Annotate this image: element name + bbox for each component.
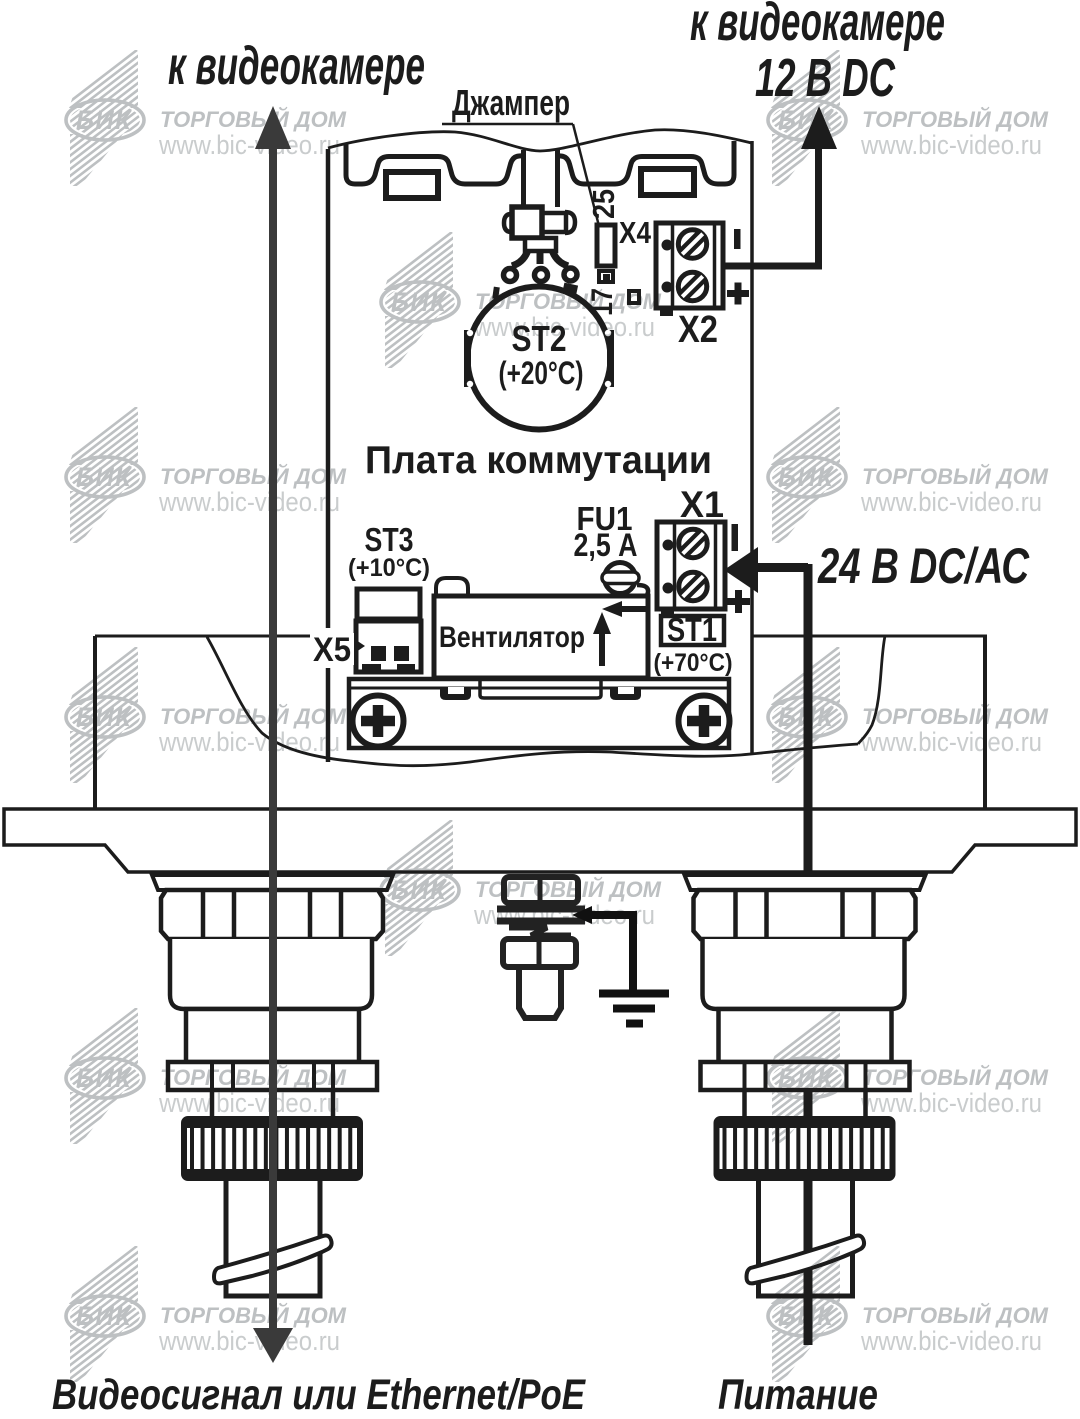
svg-text:БИК: БИК [778, 702, 835, 732]
svg-text:к видеокамере: к видеокамере [690, 0, 945, 52]
svg-text:ТОРГОВЫЙ ДОМ: ТОРГОВЫЙ ДОМ [160, 1302, 347, 1328]
svg-text:www.bic-video.ru: www.bic-video.ru [860, 487, 1042, 517]
svg-text:www.bic-video.ru: www.bic-video.ru [158, 130, 340, 160]
svg-text:www.bic-video.ru: www.bic-video.ru [860, 727, 1042, 757]
svg-text:БИК: БИК [76, 462, 133, 492]
svg-text:БИК: БИК [778, 1301, 835, 1331]
svg-text:24 В DC/АС: 24 В DC/АС [817, 538, 1029, 594]
svg-text:www.bic-video.ru: www.bic-video.ru [860, 1088, 1042, 1118]
svg-text:www.bic-video.ru: www.bic-video.ru [860, 130, 1042, 160]
svg-text:к видеокамере: к видеокамере [168, 36, 425, 96]
svg-text:ТОРГОВЫЙ ДОМ: ТОРГОВЫЙ ДОМ [160, 703, 347, 729]
svg-text:www.bic-video.ru: www.bic-video.ru [860, 1326, 1042, 1356]
svg-text:X2: X2 [678, 309, 718, 351]
svg-text:БИК: БИК [391, 875, 448, 905]
svg-text:ТОРГОВЫЙ ДОМ: ТОРГОВЫЙ ДОМ [862, 1064, 1049, 1090]
svg-text:ТОРГОВЫЙ ДОМ: ТОРГОВЫЙ ДОМ [160, 106, 347, 132]
svg-text:БИК: БИК [778, 1063, 835, 1093]
svg-text:БИК: БИК [76, 1301, 133, 1331]
svg-text:БИК: БИК [76, 702, 133, 732]
svg-text:(+70°C): (+70°C) [654, 649, 733, 677]
svg-text:БИК: БИК [778, 105, 835, 135]
svg-text:ТОРГОВЫЙ ДОМ: ТОРГОВЫЙ ДОМ [160, 463, 347, 489]
svg-text:БИК: БИК [76, 1063, 133, 1093]
svg-text:БИК: БИК [391, 287, 448, 317]
svg-text:ТОРГОВЫЙ ДОМ: ТОРГОВЫЙ ДОМ [475, 876, 662, 902]
svg-text:X5: X5 [313, 631, 351, 669]
svg-text:(+20°C): (+20°C) [499, 355, 584, 391]
svg-text:Плата коммутации: Плата коммутации [365, 439, 712, 482]
svg-text:ST1: ST1 [667, 611, 717, 648]
svg-text:www.bic-video.ru: www.bic-video.ru [158, 1088, 340, 1118]
svg-text:2,5 А: 2,5 А [574, 527, 638, 563]
svg-text:ТОРГОВЫЙ ДОМ: ТОРГОВЫЙ ДОМ [475, 288, 662, 314]
svg-text:Джампер: Джампер [452, 82, 570, 123]
svg-text:25: 25 [586, 189, 621, 219]
svg-text:ТОРГОВЫЙ ДОМ: ТОРГОВЫЙ ДОМ [862, 1302, 1049, 1328]
svg-text:X1: X1 [680, 484, 724, 525]
svg-text:ТОРГОВЫЙ ДОМ: ТОРГОВЫЙ ДОМ [862, 463, 1049, 489]
svg-text:www.bic-video.ru: www.bic-video.ru [473, 900, 655, 930]
svg-text:www.bic-video.ru: www.bic-video.ru [158, 487, 340, 517]
svg-text:(+10°C): (+10°C) [348, 554, 430, 582]
svg-text:БИК: БИК [76, 105, 133, 135]
svg-text:www.bic-video.ru: www.bic-video.ru [158, 1326, 340, 1356]
svg-text:ST3: ST3 [365, 521, 414, 558]
svg-text:Вентилятор: Вентилятор [439, 621, 585, 654]
svg-text:ТОРГОВЫЙ ДОМ: ТОРГОВЫЙ ДОМ [862, 703, 1049, 729]
svg-text:www.bic-video.ru: www.bic-video.ru [158, 727, 340, 757]
svg-text:Питание: Питание [718, 1371, 878, 1414]
svg-text:Видеосигнал или Ethernet/PoE: Видеосигнал или Ethernet/PoE [52, 1371, 586, 1414]
svg-text:ТОРГОВЫЙ ДОМ: ТОРГОВЫЙ ДОМ [862, 106, 1049, 132]
svg-text:ТОРГОВЫЙ ДОМ: ТОРГОВЫЙ ДОМ [160, 1064, 347, 1090]
svg-text:X4: X4 [619, 215, 652, 250]
svg-text:www.bic-video.ru: www.bic-video.ru [473, 312, 655, 342]
svg-text:БИК: БИК [778, 462, 835, 492]
